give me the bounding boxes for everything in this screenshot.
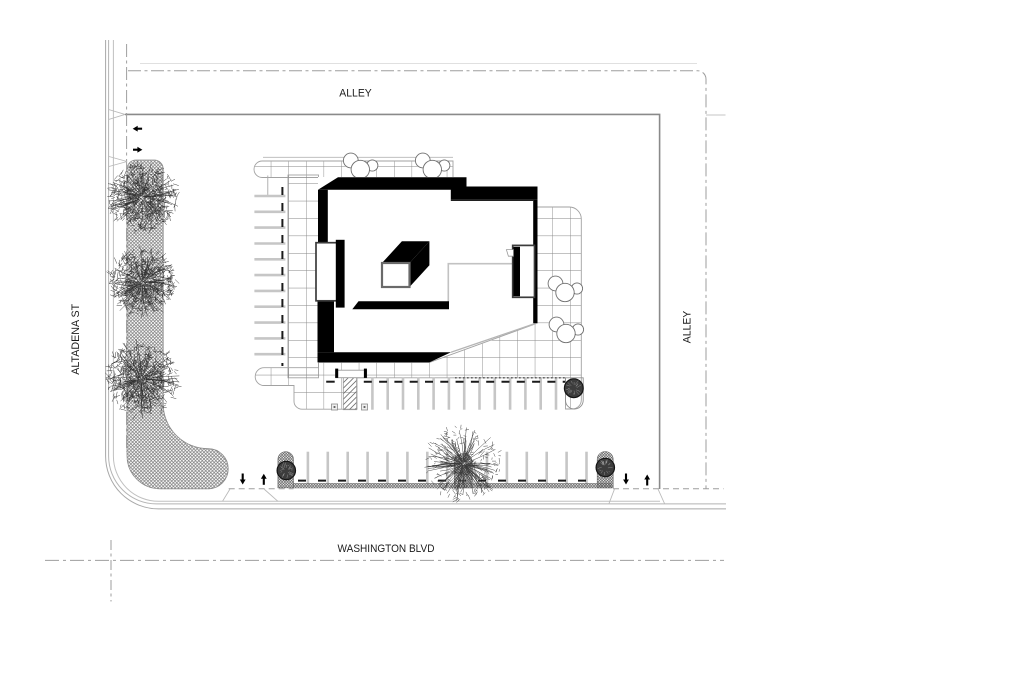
svg-text:ALTADENA ST: ALTADENA ST — [70, 304, 82, 375]
svg-text:ALLEY: ALLEY — [339, 87, 372, 99]
svg-text:WASHINGTON BLVD: WASHINGTON BLVD — [338, 543, 435, 555]
svg-text:ALLEY: ALLEY — [681, 310, 693, 343]
